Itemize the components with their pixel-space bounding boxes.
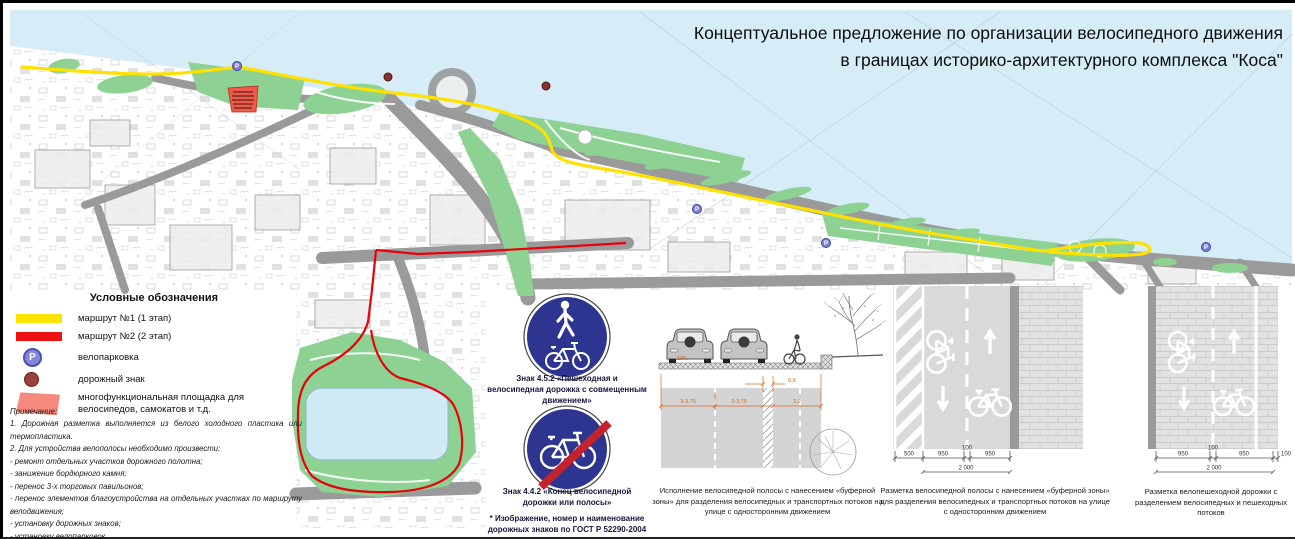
legend-item-parking: P велопарковка <box>16 348 292 367</box>
dimension-labels: 500 950 100 950 2 000 <box>904 446 996 472</box>
multifunctional-platform <box>228 86 258 112</box>
svg-text:950: 950 <box>1239 452 1250 458</box>
sign-4-5-2-caption: Знак 4.5.2 «Пешеходная и велосипедная до… <box>487 374 647 406</box>
svg-text:100: 100 <box>1281 452 1292 458</box>
notes-line: - ремонт отдельных участков дорожного по… <box>10 456 302 468</box>
cross-section-diagram: 20‰ 3-3,75 3-3,75 0,6 2,2 <box>653 292 888 487</box>
svg-text:P: P <box>235 64 239 70</box>
svg-text:100: 100 <box>962 446 973 452</box>
svg-text:0,6: 0,6 <box>788 378 796 384</box>
legend-item-route1: маршрут №1 (1 этап) <box>16 312 292 325</box>
svg-text:P: P <box>824 241 828 247</box>
pond <box>306 388 448 460</box>
legend-panel: Условные обозначения маршрут №1 (1 этап)… <box>16 292 292 421</box>
road-sign-icon <box>24 372 39 387</box>
bike-parking-marker: P <box>822 239 831 248</box>
notes-line: 2. Для устройства велополосы необходимо … <box>10 443 302 455</box>
circular-plaza <box>432 72 472 112</box>
marking-diagram-2-caption: Разметка велопешеходной дорожки с раздел… <box>1125 487 1295 519</box>
svg-text:P: P <box>695 207 699 213</box>
bike-parking-marker: P <box>693 205 702 214</box>
sign-4-4-2-caption: Знак 4.4.2 «Конец велосипедной дорожки и… <box>487 487 647 509</box>
bike-parking-marker: P <box>1202 243 1211 252</box>
svg-text:950: 950 <box>938 452 949 458</box>
car-icon <box>667 329 713 363</box>
buffer-strip <box>763 388 773 468</box>
curb-block <box>821 355 832 369</box>
marking-diagram-1-caption: Разметка велосипедной полосы с нанесение… <box>880 486 1110 518</box>
cross-section-caption: Исполнение велосипедной полосы с нанесен… <box>650 486 885 518</box>
svg-text:2 000: 2 000 <box>1206 466 1222 472</box>
svg-text:3-3,75: 3-3,75 <box>731 399 747 405</box>
marking-diagram-bike-lane: 500 950 100 950 2 000 <box>890 286 1095 486</box>
svg-text:950: 950 <box>1178 452 1189 458</box>
svg-text:P: P <box>1204 245 1208 251</box>
poster-page: P P P P Концептуальное предложение по ор… <box>0 0 1295 539</box>
notes-line: - перенос элементов благоустройства на о… <box>10 493 302 518</box>
page-title-line-2: в границах историко-архитектурного компл… <box>694 47 1283 74</box>
dimension-labels: 950 100 950 100 2 000 <box>1178 446 1292 472</box>
notes-line: - занижение бордюрного камня; <box>10 468 302 480</box>
notes-line: 1. Дорожная разметка выполняется из бело… <box>10 418 302 443</box>
bike-parking-icon: P <box>23 348 42 367</box>
road-sign-marker <box>542 82 550 90</box>
curb-strip <box>1010 286 1019 449</box>
road-surface <box>659 363 821 369</box>
car-icon <box>721 329 767 363</box>
legend-item-label: велопарковка <box>78 352 139 364</box>
sidewalk-pavement <box>1019 286 1083 449</box>
svg-text:500: 500 <box>904 452 915 458</box>
route-2-swatch <box>16 332 62 341</box>
buffer-zone-hatch <box>895 286 923 449</box>
notes-line: - перенос 3-х торговых павильонов; <box>10 481 302 493</box>
curb-strip <box>1148 286 1156 449</box>
sign-4-4-2 <box>517 399 617 499</box>
legend-item-roadsign: дорожный знак <box>16 372 292 387</box>
cyclist-icon <box>784 334 805 364</box>
tree-elevation <box>824 293 886 355</box>
notes-line: - установку дорожных знаков; <box>10 518 302 530</box>
bike-parking-marker: P <box>233 62 242 71</box>
svg-text:3-3,75: 3-3,75 <box>680 399 696 405</box>
svg-text:2,2: 2,2 <box>793 399 801 405</box>
fountain <box>578 130 592 144</box>
svg-text:100: 100 <box>1208 446 1219 452</box>
gost-note: * Изображение, номер и наименование доро… <box>483 514 651 536</box>
legend-item-route2: маршрут №2 (2 этап) <box>16 330 292 343</box>
notes-heading: Примечание: <box>10 406 302 418</box>
notes-line: - установку велопарковок. <box>10 531 302 539</box>
legend-item-label: дорожный знак <box>78 374 145 386</box>
road-sign-marker <box>384 73 392 81</box>
slope-label: 20‰ <box>677 356 689 362</box>
path-pavement <box>1156 286 1278 449</box>
marking-diagram-bike-ped-path: 950 100 950 100 2 000 <box>1128 286 1295 486</box>
legend-title: Условные обозначения <box>16 292 292 304</box>
page-title-line-1: Концептуальное предложение по организаци… <box>694 20 1283 47</box>
page-title: Концептуальное предложение по организаци… <box>694 20 1283 74</box>
sidewalk-surface <box>832 355 883 357</box>
svg-text:2 000: 2 000 <box>958 466 974 472</box>
legend-item-label: маршрут №2 (2 этап) <box>78 331 171 343</box>
legend-item-label: маршрут №1 (1 этап) <box>78 313 171 325</box>
notes-block: Примечание: 1. Дорожная разметка выполня… <box>10 406 302 539</box>
svg-text:950: 950 <box>985 452 996 458</box>
sign-4-5-2 <box>517 287 617 387</box>
route-1-swatch <box>16 314 62 323</box>
